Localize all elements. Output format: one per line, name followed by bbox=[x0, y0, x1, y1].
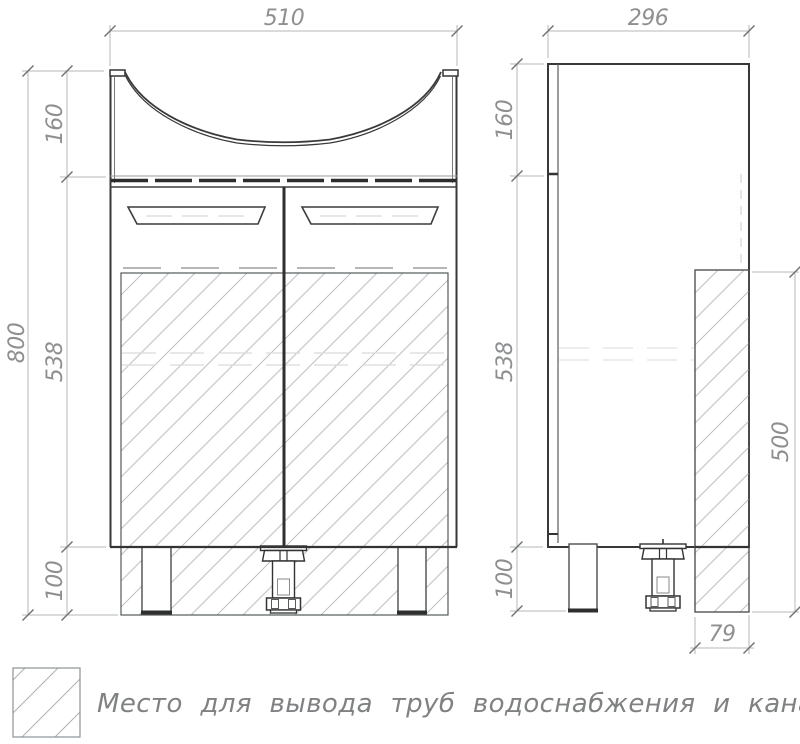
dim-front-segments: 160 538 100 bbox=[43, 66, 106, 621]
side-pipe-zone-hatch bbox=[695, 270, 749, 612]
dim-label-296: 296 bbox=[628, 6, 669, 31]
front-left-leg bbox=[141, 547, 172, 613]
legend-label: Место для вывода труб водоснабжения и ка… bbox=[97, 689, 800, 719]
dim-label-front-160: 160 bbox=[43, 104, 68, 145]
dim-label-side-160: 160 bbox=[493, 100, 518, 141]
dim-label-front-538: 538 bbox=[43, 341, 68, 382]
side-adjustable-foot bbox=[640, 539, 686, 611]
dim-pipe-zone-depth: 79 bbox=[690, 615, 755, 654]
dim-label-side-538: 538 bbox=[493, 341, 518, 382]
sink-basin-profile bbox=[110, 70, 458, 146]
dim-label-510: 510 bbox=[264, 6, 305, 31]
legend-hatch-swatch bbox=[13, 668, 80, 737]
side-view bbox=[548, 64, 749, 612]
dim-label-79: 79 bbox=[709, 622, 736, 647]
drawing-canvas: 510 296 800 160 538 100 bbox=[0, 0, 800, 744]
dim-label-front-100: 100 bbox=[43, 561, 68, 602]
front-right-leg bbox=[397, 547, 427, 613]
front-countertop bbox=[110, 176, 457, 187]
right-door-handle bbox=[302, 207, 438, 224]
dim-pipe-zone-height: 500 bbox=[752, 267, 800, 618]
dim-side-depth: 296 bbox=[543, 6, 755, 58]
front-view bbox=[110, 70, 458, 615]
dim-label-500: 500 bbox=[769, 422, 794, 463]
left-door-handle bbox=[128, 207, 265, 224]
technical-drawing: 510 296 800 160 538 100 bbox=[0, 0, 800, 744]
dim-front-width: 510 bbox=[105, 6, 463, 66]
dim-label-side-100: 100 bbox=[493, 559, 518, 600]
dim-label-800: 800 bbox=[5, 323, 30, 364]
side-leg bbox=[568, 544, 598, 611]
legend: Место для вывода труб водоснабжения и ка… bbox=[13, 668, 800, 737]
